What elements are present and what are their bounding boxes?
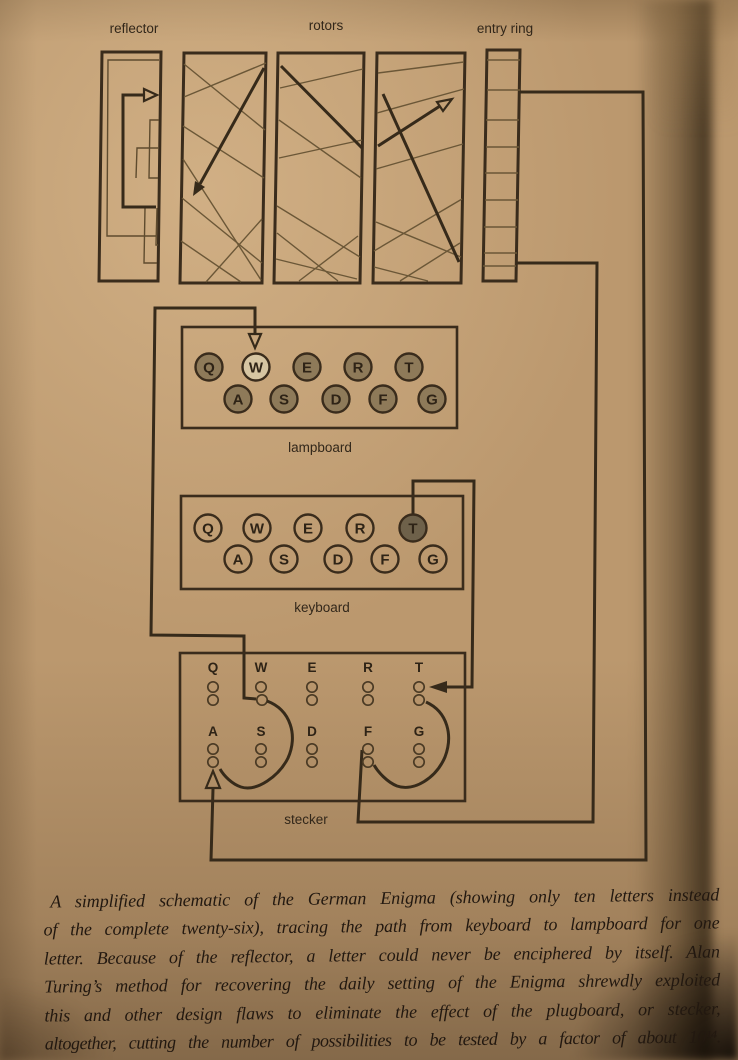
rotor1-box [180,53,266,283]
arrow-into-lampboard-W-icon [249,334,261,348]
key-letter: D [333,551,344,568]
lamp-letter: T [404,359,413,376]
stecker-letter: S [256,724,265,739]
lamp-letter: S [279,391,289,408]
reflector-wires [107,60,159,263]
stecker-cable-T-F [374,702,449,787]
stecker-letter: E [307,660,316,675]
stecker-letter: W [255,660,268,675]
key-letter: G [427,551,439,568]
signal-path-loops [151,92,646,860]
key-letter: S [279,551,289,568]
lamp-letter: G [426,391,438,408]
rotor1-wires [181,63,266,282]
arrow-into-stecker-T-icon [429,681,447,693]
reflector-box [99,52,161,281]
key-letter: R [355,520,366,537]
stecker-label: stecker [284,812,328,827]
stecker-letters: Q W E R T A S D F G [208,660,425,739]
rotors-label: rotors [309,18,344,33]
entry-ring-box [483,50,520,281]
lampboard-label: lampboard [288,440,352,455]
lampboard: Q W E R T A S D F G lampboard [182,327,457,455]
stecker-letter: T [415,660,424,675]
key-letter: E [303,520,313,537]
keyboard-label: keyboard [294,600,350,615]
lamp-letter: R [353,359,364,376]
arrow-toward-entry-ring-icon [437,99,452,111]
key-letter: W [250,520,265,537]
lamp-letter: E [302,359,312,376]
entry-ring-segments [483,60,520,266]
rotor2-box [274,53,364,283]
stecker-letter: F [364,724,372,739]
lamp-letter: A [233,391,244,408]
lamp-letter: D [331,391,342,408]
lamp-letter: F [378,391,387,408]
signal-path-rotor3-forward [378,106,440,146]
arrow-into-rotor1-icon [144,89,157,101]
stecker-letter: D [307,724,317,739]
stecker-letter: Q [208,660,219,675]
lamp-letter: Q [203,359,215,376]
keyboard-keys: Q W E R T A S D F G [195,515,447,573]
signal-path-stecker-F-to-entryring [358,263,597,822]
stecker-cable-W-A [220,701,292,788]
key-letter: A [233,551,244,568]
keyboard: Q W E R T A S D F G keyboard [181,496,463,615]
key-letter: T [408,520,417,537]
key-letter: F [380,551,389,568]
signal-path-reflector [123,95,156,207]
reflector-label: reflector [110,21,159,36]
entry-ring-label: entry ring [477,21,533,36]
stecker-letter: A [208,724,218,739]
stecker: Q W E R T A S D F G stecker [180,653,465,827]
rotor3-box [373,53,465,283]
lamp-letter: W [249,359,264,376]
book-page-photo: { "figure": { "labels": { "reflector": "… [0,0,738,1060]
lampboard-lamps: Q W E R T A S D F G [196,354,446,413]
stecker-letter: R [363,660,373,675]
arrow-into-stecker-A-icon [206,771,220,788]
stecker-letter: G [414,724,425,739]
key-letter: Q [202,520,214,537]
figure-caption: A simplified schematic of the German Eni… [43,880,721,1058]
rotor2-wires [276,69,363,281]
